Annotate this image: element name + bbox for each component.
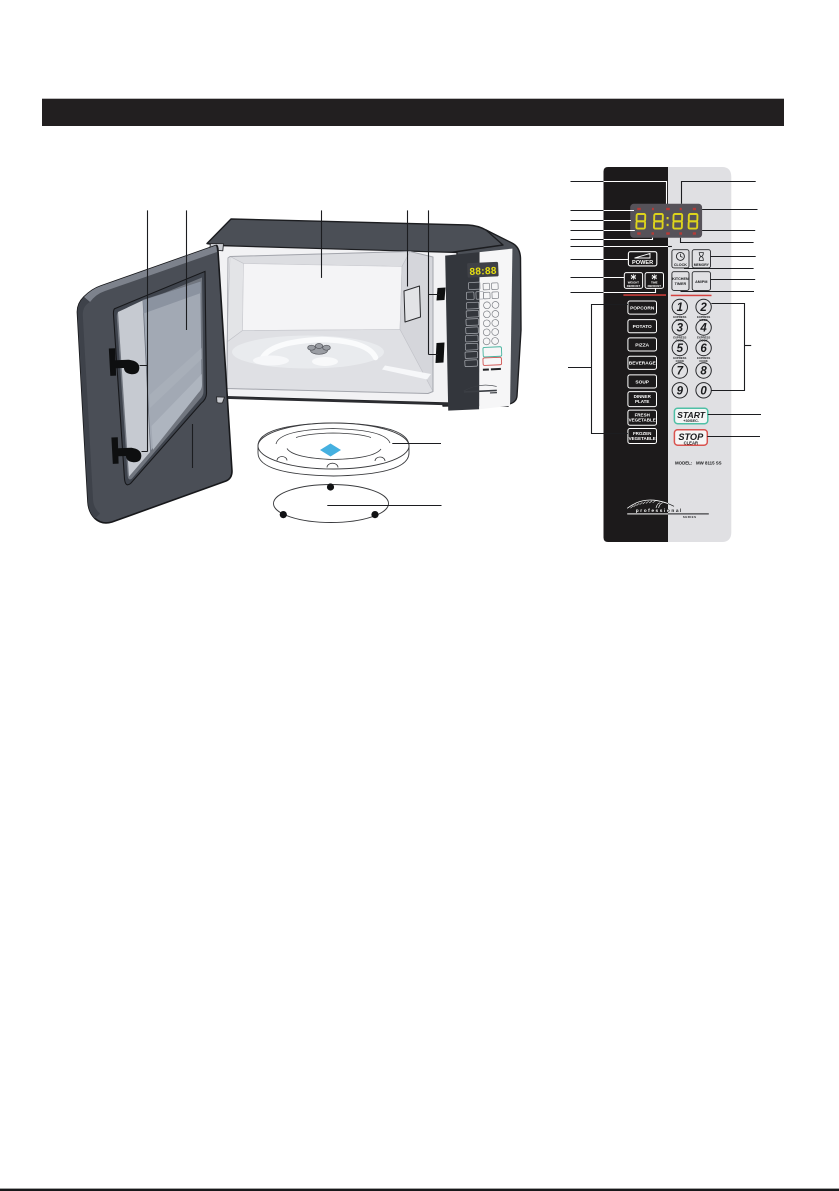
svg-text:7: 7	[677, 366, 684, 378]
svg-text:SERIES: SERIES	[683, 515, 697, 519]
svg-text:6: 6	[700, 343, 707, 355]
svg-text:AM/PM: AM/PM	[695, 280, 707, 284]
svg-text:COOK: COOK	[676, 359, 684, 363]
svg-text:COOK: COOK	[676, 318, 684, 322]
svg-text:DINNER: DINNER	[634, 394, 652, 399]
svg-text:MODEL: MW 8115 SS: MODEL: MW 8115 SS	[675, 461, 722, 466]
svg-text:5: 5	[677, 343, 684, 355]
svg-text:COOK: COOK	[676, 339, 684, 343]
svg-text:4: 4	[699, 323, 707, 335]
svg-text:3: 3	[677, 323, 684, 335]
svg-text:FROZEN: FROZEN	[633, 431, 652, 436]
svg-text:2: 2	[699, 302, 707, 314]
svg-text:8: 8	[700, 366, 707, 378]
svg-text:PLATE: PLATE	[635, 399, 649, 404]
svg-text:KITCHEN: KITCHEN	[672, 277, 689, 281]
svg-text:88:88: 88:88	[469, 266, 497, 278]
svg-text:CLEAR: CLEAR	[684, 440, 698, 445]
svg-text:+30SEC.: +30SEC.	[683, 418, 699, 423]
svg-text:1: 1	[677, 302, 683, 314]
svg-text:BEVERAGE: BEVERAGE	[629, 361, 657, 367]
svg-text:COOK: COOK	[699, 318, 707, 322]
svg-text:MEMORY: MEMORY	[694, 263, 710, 267]
svg-text:SOUP: SOUP	[635, 379, 649, 385]
svg-text:FRESH: FRESH	[635, 412, 650, 417]
svg-text:VEGETABLE: VEGETABLE	[629, 436, 656, 441]
svg-text:VEGETABLE: VEGETABLE	[629, 418, 656, 423]
svg-text:POPCORN: POPCORN	[630, 305, 655, 311]
svg-text:TIMER: TIMER	[675, 282, 687, 286]
svg-text:COOK: COOK	[699, 339, 707, 343]
svg-text:COOK: COOK	[699, 359, 707, 363]
svg-text:POTATO: POTATO	[633, 324, 652, 330]
svg-text:DEFROST: DEFROST	[648, 284, 662, 288]
svg-text:CLOCK: CLOCK	[674, 263, 687, 267]
svg-text:POWER: POWER	[632, 260, 653, 266]
svg-text:DEFROST: DEFROST	[627, 284, 641, 288]
svg-text:0: 0	[700, 385, 707, 397]
svg-text:9: 9	[677, 385, 684, 397]
svg-text:PIZZA: PIZZA	[635, 342, 649, 348]
